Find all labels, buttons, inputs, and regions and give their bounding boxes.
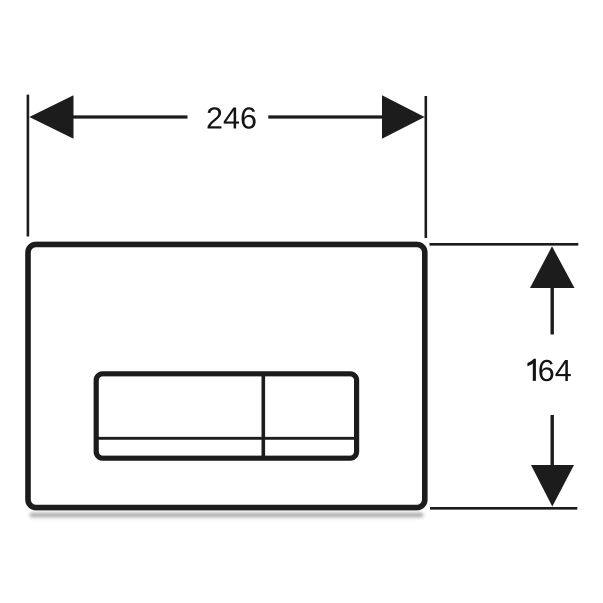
svg-text:64: 64 [538, 354, 572, 388]
svg-text:246: 246 [206, 102, 257, 136]
